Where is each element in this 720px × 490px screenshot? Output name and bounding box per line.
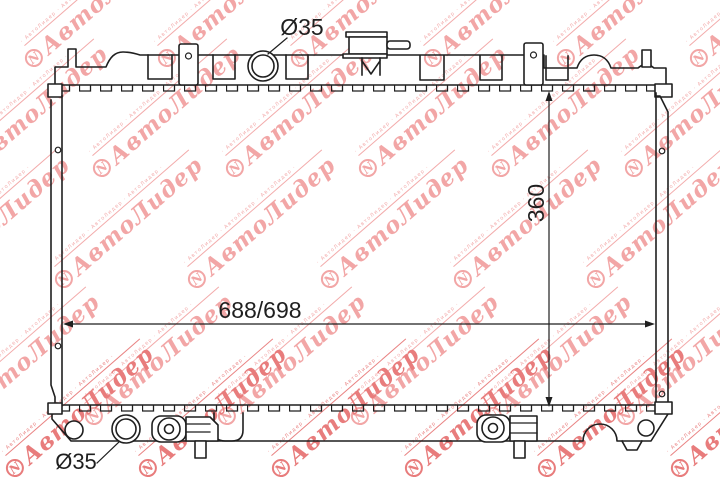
bottom-mount-right <box>477 415 537 458</box>
bottom-mount-left <box>152 416 218 458</box>
bottom-bump <box>622 441 642 450</box>
left-plate-hole-lower <box>55 343 61 349</box>
bottom-port-leader <box>97 442 119 463</box>
radiator-drawing-page: · АвтоЛидер · АвтоЛидер · АвтоЛидер ·NАв… <box>0 0 720 490</box>
bottom-strip-left-foot <box>48 403 62 414</box>
side-plates <box>51 93 668 403</box>
overflow-fitting <box>343 32 410 75</box>
top-tank <box>48 32 672 97</box>
bottom-tank <box>48 402 672 458</box>
bottom-port-label: Ø35 <box>55 449 97 474</box>
right-plate-hole-upper <box>659 148 665 154</box>
width-dim-arrow-left <box>63 321 73 328</box>
drain-plug-left <box>195 441 206 458</box>
top-tab-left <box>179 44 198 85</box>
bottom-hole-left <box>65 421 83 439</box>
bottom-tank-crimp-strip <box>58 405 670 413</box>
top-tank-crimp-strip <box>58 85 658 93</box>
right-side-plate <box>656 93 668 402</box>
top-port-leader <box>268 38 287 54</box>
left-side-plate <box>51 96 62 403</box>
top-port-label: Ø35 <box>280 14 323 40</box>
bottom-tank-outline <box>52 413 668 441</box>
height-dim-label: 360 <box>523 184 549 222</box>
width-dim-arrow-right <box>645 321 655 328</box>
left-plate-hole-upper <box>55 147 61 153</box>
right-plate-hole-lower <box>659 391 665 397</box>
top-tab-right <box>524 43 543 85</box>
top-strip-left-foot <box>48 84 62 97</box>
width-dim-label: 688/698 <box>218 297 301 323</box>
right-pin <box>642 50 651 67</box>
bottom-strip-right-foot <box>655 402 672 414</box>
drain-plug-right <box>514 441 525 458</box>
top-strip-right-foot <box>655 84 672 97</box>
radiator-diagram: 360 688/698 Ø35 Ø35 <box>0 0 720 490</box>
bottom-hole-right <box>638 420 654 436</box>
